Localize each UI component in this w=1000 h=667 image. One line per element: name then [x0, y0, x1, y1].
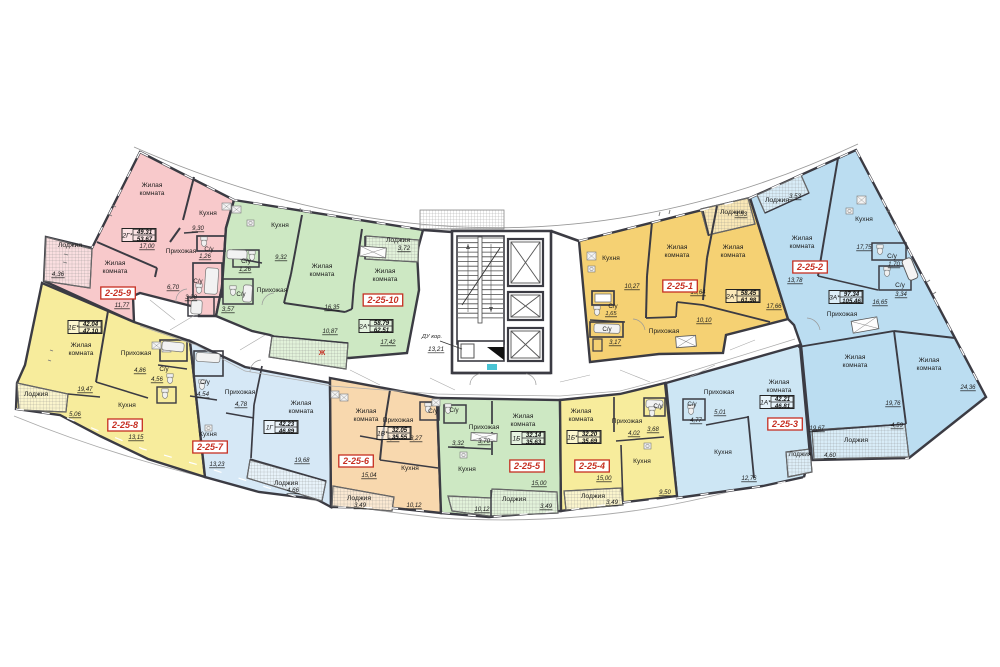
svg-text:17,66: 17,66 — [766, 304, 782, 310]
svg-text:С/у: С/у — [204, 246, 214, 253]
svg-text:2-25-1: 2-25-1 — [666, 281, 693, 291]
svg-text:комната: комната — [140, 190, 165, 197]
svg-text:2А*: 2А* — [358, 323, 370, 330]
svg-text:комната: комната — [917, 365, 942, 372]
svg-text:С/у: С/у — [428, 408, 439, 415]
svg-text:2А*: 2А* — [725, 293, 737, 300]
svg-text:1,70: 1,70 — [888, 262, 900, 268]
svg-text:12,76: 12,76 — [741, 476, 757, 482]
svg-text:комната: комната — [511, 421, 536, 428]
svg-text:4,77: 4,77 — [690, 418, 702, 424]
svg-text:комната: комната — [310, 271, 335, 278]
svg-text:4,36: 4,36 — [52, 271, 65, 278]
svg-text:10,87: 10,87 — [322, 329, 338, 335]
svg-text:комната: комната — [721, 252, 746, 259]
svg-text:Кухня: Кухня — [458, 466, 476, 473]
svg-text:С/у: С/у — [193, 278, 203, 285]
svg-text:Прихожая: Прихожая — [166, 248, 197, 255]
svg-text:24,36: 24,36 — [959, 385, 976, 391]
svg-text:Кухня: Кухня — [401, 465, 419, 472]
svg-text:Прихожая: Прихожая — [612, 418, 643, 425]
svg-text:19,47: 19,47 — [77, 387, 93, 393]
svg-text:С/у: С/у — [159, 366, 169, 373]
svg-text:С/у: С/у — [653, 403, 663, 410]
svg-text:3,49: 3,49 — [354, 502, 367, 509]
svg-text:Жилая: Жилая — [723, 244, 744, 251]
svg-text:Кухня: Кухня — [118, 402, 136, 409]
svg-text:Прихожая: Прихожая — [383, 417, 414, 424]
svg-text:16,65: 16,65 — [872, 300, 888, 306]
svg-text:3,27: 3,27 — [410, 435, 423, 442]
svg-text:Кухня: Кухня — [855, 216, 873, 223]
svg-text:ДУ кор.: ДУ кор. — [421, 334, 442, 340]
svg-text:1Е*: 1Е* — [68, 324, 79, 331]
svg-text:13,78: 13,78 — [787, 278, 803, 284]
svg-text:10,27: 10,27 — [624, 284, 640, 290]
svg-text:Прихожая: Прихожая — [225, 389, 256, 396]
svg-text:6,70: 6,70 — [167, 284, 180, 291]
svg-text:9,50: 9,50 — [659, 490, 671, 496]
svg-text:3,32: 3,32 — [452, 440, 465, 447]
svg-text:комната: комната — [569, 416, 594, 423]
svg-text:16,35: 16,35 — [324, 305, 340, 311]
svg-text:3,49: 3,49 — [606, 499, 619, 506]
svg-text:4,56: 4,56 — [151, 377, 163, 383]
svg-text:53.67: 53.67 — [137, 236, 153, 243]
svg-text:комната: комната — [69, 350, 94, 357]
svg-text:3А*: 3А* — [829, 294, 840, 301]
svg-text:Лоджия: Лоджия — [844, 437, 868, 444]
svg-text:2-25-2: 2-25-2 — [796, 262, 823, 272]
svg-text:Ж: Ж — [318, 350, 326, 357]
svg-text:Лоджия: Лоджия — [24, 391, 48, 398]
svg-text:Жилая: Жилая — [667, 244, 688, 251]
svg-text:15,00: 15,00 — [531, 481, 547, 487]
svg-text:Жилая: Жилая — [845, 354, 866, 361]
svg-text:комната: комната — [665, 252, 690, 259]
svg-text:2-25-4: 2-25-4 — [578, 461, 605, 471]
svg-text:комната: комната — [289, 408, 314, 415]
svg-text:Кухня: Кухня — [199, 431, 217, 438]
svg-text:1,26: 1,26 — [239, 266, 252, 273]
svg-text:2-25-10: 2-25-10 — [366, 295, 398, 305]
svg-text:3,28: 3,28 — [185, 295, 197, 301]
svg-text:62.51: 62.51 — [374, 327, 390, 334]
svg-text:46.81: 46.81 — [774, 403, 791, 410]
svg-text:1В*: 1В* — [377, 430, 388, 437]
svg-text:Лоджия: Лоджия — [765, 197, 789, 204]
svg-text:Жилая: Жилая — [571, 408, 592, 415]
svg-text:13,21: 13,21 — [428, 346, 444, 353]
svg-text:Жилая: Жилая — [356, 408, 377, 415]
svg-text:С/у: С/у — [602, 326, 612, 333]
svg-text:1,65: 1,65 — [605, 311, 617, 317]
svg-text:4,78: 4,78 — [235, 401, 248, 408]
svg-text:С/у: С/у — [241, 258, 252, 265]
svg-text:Лоджия: Лоджия — [274, 480, 298, 487]
svg-text:С/у: С/у — [608, 303, 618, 310]
svg-text:3,53: 3,53 — [735, 211, 748, 218]
svg-text:Кухня: Кухня — [633, 458, 651, 465]
svg-text:17,00: 17,00 — [139, 244, 155, 250]
svg-text:35.69: 35.69 — [582, 438, 598, 445]
svg-text:Жилая: Жилая — [291, 400, 312, 407]
svg-text:С/у: С/у — [449, 407, 459, 414]
svg-text:2Г*: 2Г* — [122, 232, 133, 239]
svg-text:комната: комната — [790, 243, 815, 250]
svg-text:19,68: 19,68 — [294, 458, 310, 464]
svg-text:4,02: 4,02 — [628, 431, 640, 437]
svg-text:13,23: 13,23 — [209, 462, 225, 468]
svg-text:1,26: 1,26 — [199, 254, 211, 260]
svg-text:Жилая: Жилая — [513, 413, 534, 420]
svg-text:Прихожая: Прихожая — [704, 389, 735, 396]
svg-text:Жилая: Жилая — [142, 182, 163, 189]
svg-text:Прихожая: Прихожая — [257, 287, 288, 294]
svg-text:5,06: 5,06 — [69, 412, 81, 418]
svg-text:комната: комната — [843, 362, 868, 369]
svg-text:1Б: 1Б — [512, 435, 520, 442]
svg-text:3,72: 3,72 — [398, 245, 411, 252]
svg-text:35.55: 35.55 — [392, 434, 408, 441]
svg-text:10,12: 10,12 — [406, 503, 422, 509]
svg-text:3,70: 3,70 — [478, 438, 491, 445]
svg-text:10,12: 10,12 — [474, 507, 490, 513]
svg-text:61.98: 61.98 — [741, 297, 757, 304]
svg-text:4,59: 4,59 — [891, 422, 904, 429]
svg-text:2-25-3: 2-25-3 — [771, 419, 798, 429]
svg-text:Жилая: Жилая — [105, 260, 126, 267]
svg-text:5,01: 5,01 — [714, 410, 726, 416]
svg-text:С/у: С/у — [236, 291, 246, 298]
svg-text:19,76: 19,76 — [885, 401, 901, 407]
svg-text:Прихожая: Прихожая — [121, 350, 152, 357]
svg-text:35.63: 35.63 — [526, 439, 542, 446]
svg-text:Прихожая: Прихожая — [827, 311, 858, 318]
svg-text:17,75: 17,75 — [856, 245, 872, 251]
svg-text:15,04: 15,04 — [361, 473, 377, 479]
svg-text:3,34: 3,34 — [895, 292, 907, 298]
svg-text:4,54: 4,54 — [197, 391, 210, 398]
svg-text:3,57: 3,57 — [222, 306, 235, 313]
svg-text:Прихожая: Прихожая — [649, 328, 680, 335]
svg-text:Лоджия: Лоджия — [581, 493, 605, 500]
svg-text:2-25-5: 2-25-5 — [513, 461, 541, 471]
svg-text:С/у: С/у — [895, 282, 906, 289]
svg-text:105.46: 105.46 — [842, 298, 861, 305]
svg-text:Кухня: Кухня — [714, 449, 732, 456]
svg-text:Кухня: Кухня — [199, 210, 217, 217]
svg-text:Лоджия: Лоджия — [347, 495, 371, 502]
svg-text:Лоджия: Лоджия — [789, 451, 812, 458]
svg-text:15,00: 15,00 — [596, 476, 612, 482]
svg-text:1А*: 1А* — [760, 399, 771, 406]
svg-text:Лоджия: Лоджия — [386, 237, 410, 244]
svg-text:1Б*: 1Б* — [567, 434, 578, 441]
svg-text:комната: комната — [373, 276, 398, 283]
svg-text:Жилая: Жилая — [71, 342, 92, 349]
svg-text:2-25-9: 2-25-9 — [104, 288, 131, 298]
svg-text:Жилая: Жилая — [312, 263, 333, 270]
svg-text:Лоджия: Лоджия — [58, 242, 82, 249]
svg-text:47.10: 47.10 — [82, 328, 99, 335]
svg-text:1Г: 1Г — [266, 424, 274, 431]
svg-text:С/у: С/у — [200, 379, 211, 386]
svg-text:Жилая: Жилая — [375, 268, 396, 275]
svg-text:Прихожая: Прихожая — [469, 424, 500, 431]
svg-text:17,42: 17,42 — [380, 340, 396, 346]
svg-text:Жилая: Жилая — [792, 235, 813, 242]
svg-text:11,77: 11,77 — [115, 303, 130, 309]
svg-text:9,32: 9,32 — [275, 255, 287, 261]
svg-text:комната: комната — [354, 416, 379, 423]
svg-text:3,49: 3,49 — [540, 503, 553, 510]
svg-text:Лоджия: Лоджия — [502, 496, 526, 503]
svg-text:4,60: 4,60 — [824, 453, 836, 459]
svg-text:комната: комната — [767, 387, 792, 394]
svg-text:3,68: 3,68 — [647, 427, 659, 433]
svg-text:10,10: 10,10 — [696, 318, 712, 324]
svg-text:13,15: 13,15 — [128, 435, 144, 441]
svg-text:4,66: 4,66 — [287, 487, 300, 494]
svg-text:3,17: 3,17 — [609, 340, 621, 346]
svg-text:19,67: 19,67 — [809, 426, 825, 432]
svg-text:3,53: 3,53 — [789, 193, 802, 200]
svg-text:Кухня: Кухня — [602, 255, 620, 262]
svg-text:Кухня: Кухня — [271, 222, 289, 229]
svg-text:С/у: С/у — [687, 401, 697, 408]
svg-text:комната: комната — [103, 268, 128, 275]
svg-text:Жилая: Жилая — [769, 379, 790, 386]
svg-text:2-25-6: 2-25-6 — [342, 456, 370, 466]
svg-text:Жилая: Жилая — [919, 357, 940, 364]
svg-text:2-25-8: 2-25-8 — [111, 420, 138, 430]
svg-text:4,86: 4,86 — [134, 368, 146, 374]
svg-text:46.89: 46.89 — [278, 428, 295, 435]
svg-text:С/у: С/у — [887, 253, 898, 260]
svg-text:2-25-7: 2-25-7 — [196, 442, 224, 452]
svg-text:9,30: 9,30 — [192, 226, 204, 232]
